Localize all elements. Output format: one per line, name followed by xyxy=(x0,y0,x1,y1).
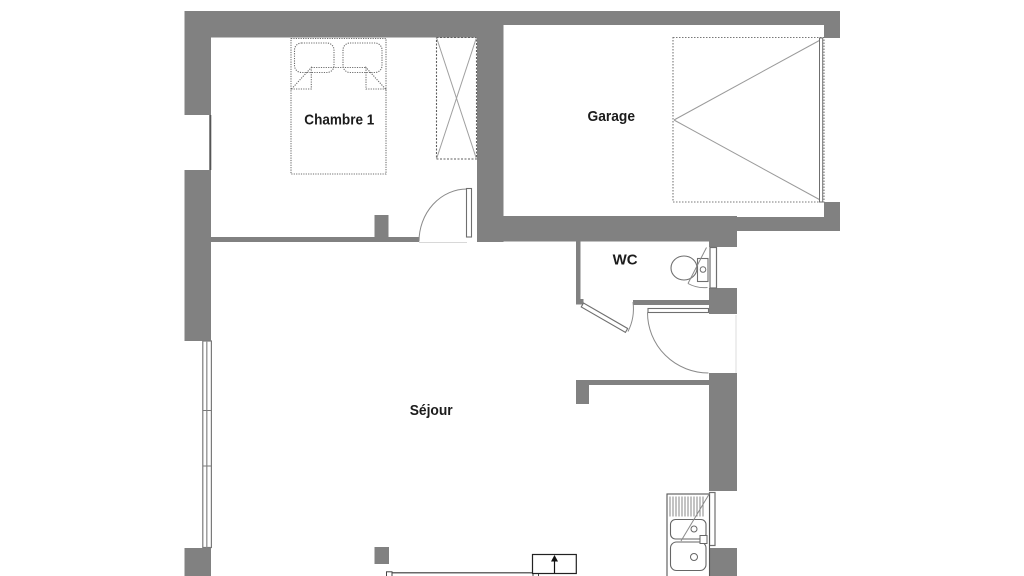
svg-text:Garage: Garage xyxy=(588,108,636,125)
svg-text:Chambre 1: Chambre 1 xyxy=(304,112,374,129)
svg-text:WC: WC xyxy=(613,251,638,268)
svg-text:Séjour: Séjour xyxy=(410,402,453,419)
